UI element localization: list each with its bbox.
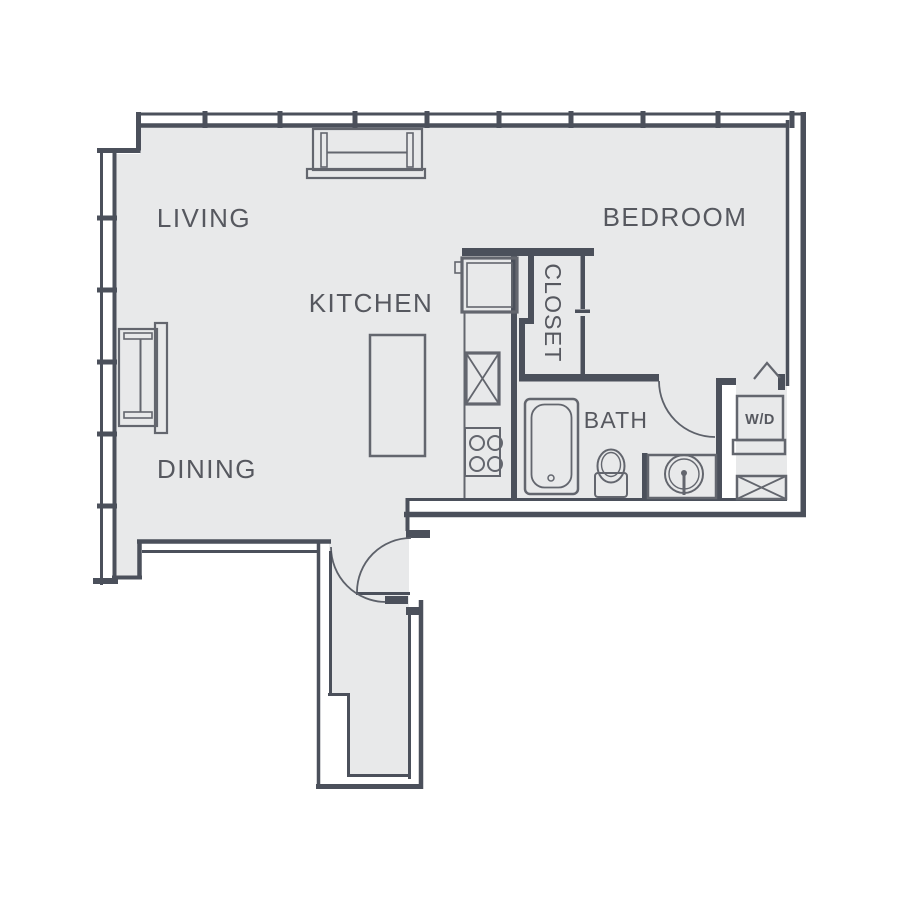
- closet-right-wall-lower: [581, 316, 586, 374]
- sink-faucet-knob: [681, 470, 687, 476]
- kitchen-label: KITCHEN: [309, 288, 434, 318]
- closet-door-tick: [575, 310, 590, 314]
- bedroom-label: BEDROOM: [603, 202, 748, 232]
- closet-label: CLOSET: [540, 263, 566, 362]
- vanity-left-stub: [642, 453, 648, 499]
- dining-label: DINING: [157, 454, 257, 484]
- bath-wd-wall-cap: [716, 378, 736, 385]
- floor-plan-page: LIVING BEDROOM KITCHEN DINING BATH CLOSE…: [0, 0, 900, 900]
- floor-plan-drawing: LIVING BEDROOM KITCHEN DINING BATH CLOSE…: [0, 0, 900, 900]
- closet-left-wall-upper: [528, 256, 534, 324]
- wd-label: W/D: [745, 412, 775, 428]
- closet-left-wall-lower: [519, 324, 525, 376]
- living-label: LIVING: [157, 203, 251, 233]
- corridor-notch: [328, 693, 350, 777]
- kitchen-closet-top-wall: [462, 248, 594, 256]
- closet-right-wall-upper: [581, 256, 586, 309]
- closet-wall-jog: [519, 318, 534, 324]
- closet-bottom-wall: [519, 374, 659, 382]
- entry-jamb-bottom: [385, 596, 408, 604]
- bath-label: BATH: [584, 407, 648, 433]
- entry-jamb-top: [406, 530, 430, 538]
- top-left-jog: [97, 112, 141, 151]
